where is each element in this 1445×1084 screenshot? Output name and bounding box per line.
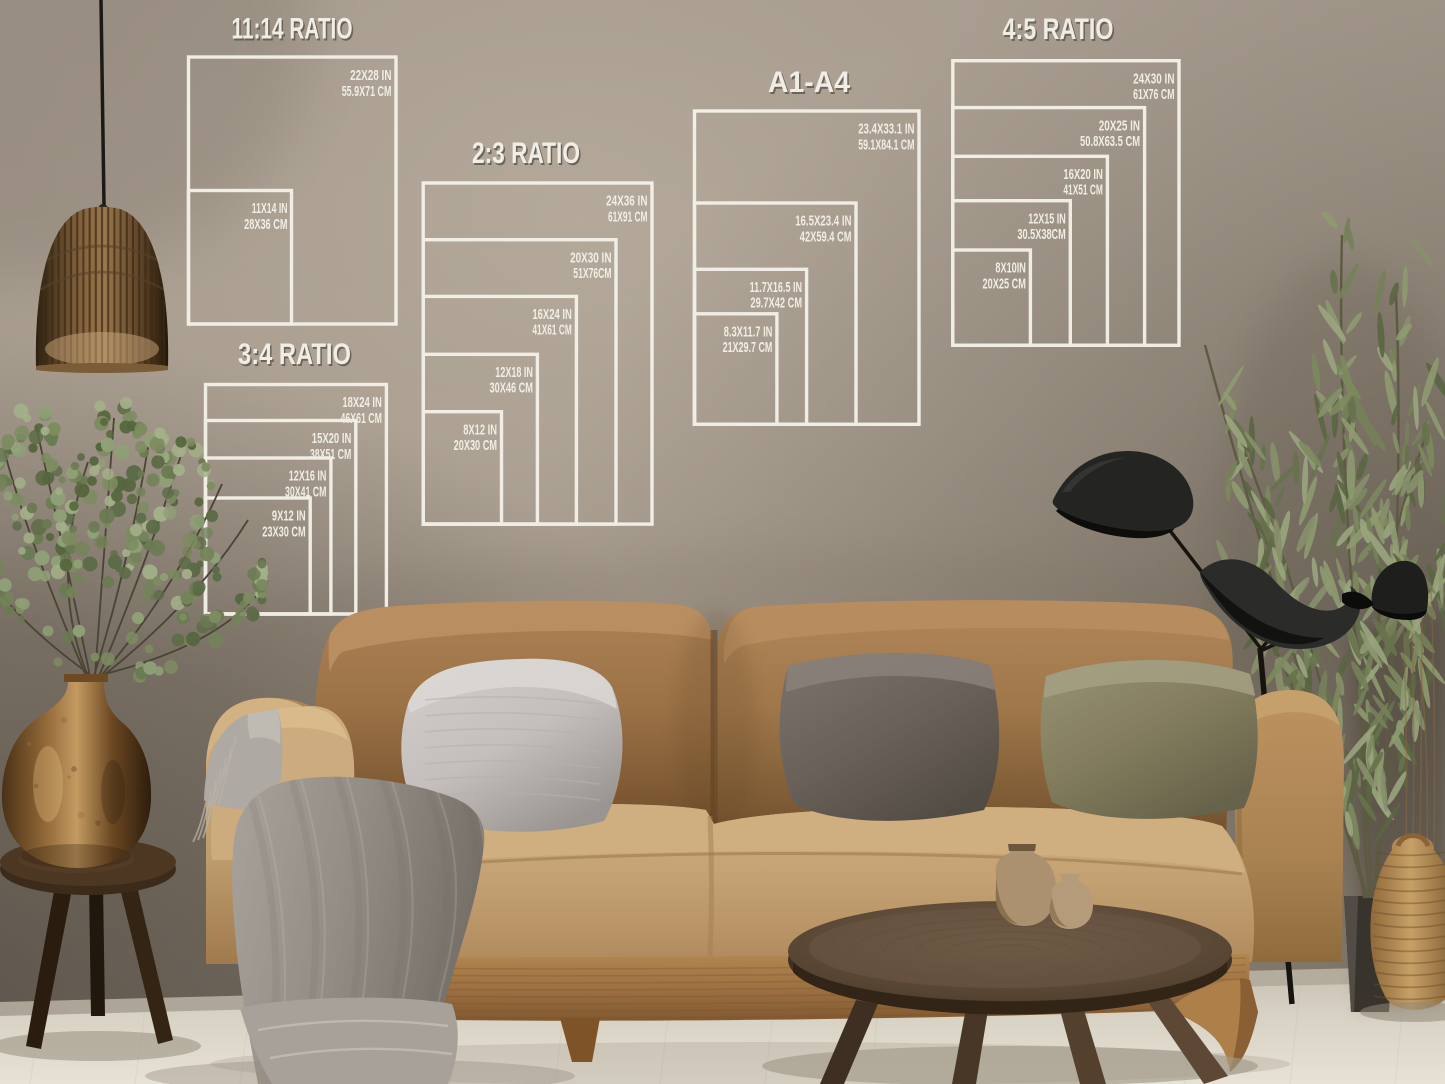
svg-text:A1-A4: A1-A4 bbox=[768, 66, 850, 99]
svg-text:30.5X38CM: 30.5X38CM bbox=[1017, 227, 1065, 243]
svg-text:42X59.4 CM: 42X59.4 CM bbox=[800, 229, 852, 245]
svg-text:29.7X42 CM: 29.7X42 CM bbox=[750, 296, 802, 312]
svg-text:12X18 IN: 12X18 IN bbox=[495, 365, 533, 381]
svg-text:9X12 IN: 9X12 IN bbox=[272, 509, 306, 525]
svg-text:16X20 IN: 16X20 IN bbox=[1063, 167, 1103, 183]
svg-text:46X61 CM: 46X61 CM bbox=[341, 411, 382, 427]
svg-text:41X51 CM: 41X51 CM bbox=[1063, 183, 1103, 199]
svg-text:16.5X23.4 IN: 16.5X23.4 IN bbox=[795, 214, 851, 230]
svg-text:50.8X63.5 CM: 50.8X63.5 CM bbox=[1080, 134, 1140, 150]
svg-text:18X24 IN: 18X24 IN bbox=[342, 395, 382, 411]
svg-text:20X25 CM: 20X25 CM bbox=[983, 276, 1026, 292]
svg-text:24X30 IN: 24X30 IN bbox=[1133, 71, 1174, 87]
svg-text:23X30 CM: 23X30 CM bbox=[262, 524, 305, 540]
svg-text:4:5 RATIO: 4:5 RATIO bbox=[1003, 13, 1114, 46]
svg-text:21X29.7 CM: 21X29.7 CM bbox=[723, 340, 773, 356]
svg-text:11.7X16.5 IN: 11.7X16.5 IN bbox=[750, 280, 803, 296]
svg-text:8.3X11.7 IN: 8.3X11.7 IN bbox=[724, 325, 773, 341]
svg-text:55.9X71 CM: 55.9X71 CM bbox=[342, 84, 392, 100]
svg-text:3:4 RATIO: 3:4 RATIO bbox=[238, 338, 351, 371]
svg-text:28X36 CM: 28X36 CM bbox=[244, 217, 287, 233]
svg-text:20X25 IN: 20X25 IN bbox=[1099, 118, 1140, 134]
svg-text:41X61 CM: 41X61 CM bbox=[532, 323, 572, 339]
svg-text:8X10IN: 8X10IN bbox=[995, 261, 1026, 277]
svg-text:2:3 RATIO: 2:3 RATIO bbox=[472, 137, 580, 170]
svg-text:8X12 IN: 8X12 IN bbox=[463, 422, 497, 438]
svg-text:23.4X33.1 IN: 23.4X33.1 IN bbox=[858, 122, 914, 138]
svg-text:12X15 IN: 12X15 IN bbox=[1028, 211, 1066, 227]
svg-text:11:14 RATIO: 11:14 RATIO bbox=[232, 13, 353, 46]
svg-text:51X76CM: 51X76CM bbox=[573, 266, 611, 282]
svg-text:30X46 CM: 30X46 CM bbox=[490, 381, 533, 397]
svg-text:61X76 CM: 61X76 CM bbox=[1133, 87, 1174, 103]
svg-text:20X30 CM: 20X30 CM bbox=[454, 438, 497, 454]
svg-text:16X24 IN: 16X24 IN bbox=[532, 307, 572, 323]
svg-text:11X14 IN: 11X14 IN bbox=[252, 201, 288, 217]
svg-text:15X20 IN: 15X20 IN bbox=[312, 431, 352, 447]
svg-text:59.1X84.1 CM: 59.1X84.1 CM bbox=[858, 137, 914, 153]
svg-text:12X16 IN: 12X16 IN bbox=[289, 469, 327, 485]
svg-text:61X91 CM: 61X91 CM bbox=[608, 209, 648, 225]
svg-text:20X30 IN: 20X30 IN bbox=[570, 250, 611, 266]
svg-text:22X28 IN: 22X28 IN bbox=[350, 68, 391, 84]
svg-text:24X36 IN: 24X36 IN bbox=[606, 194, 647, 210]
